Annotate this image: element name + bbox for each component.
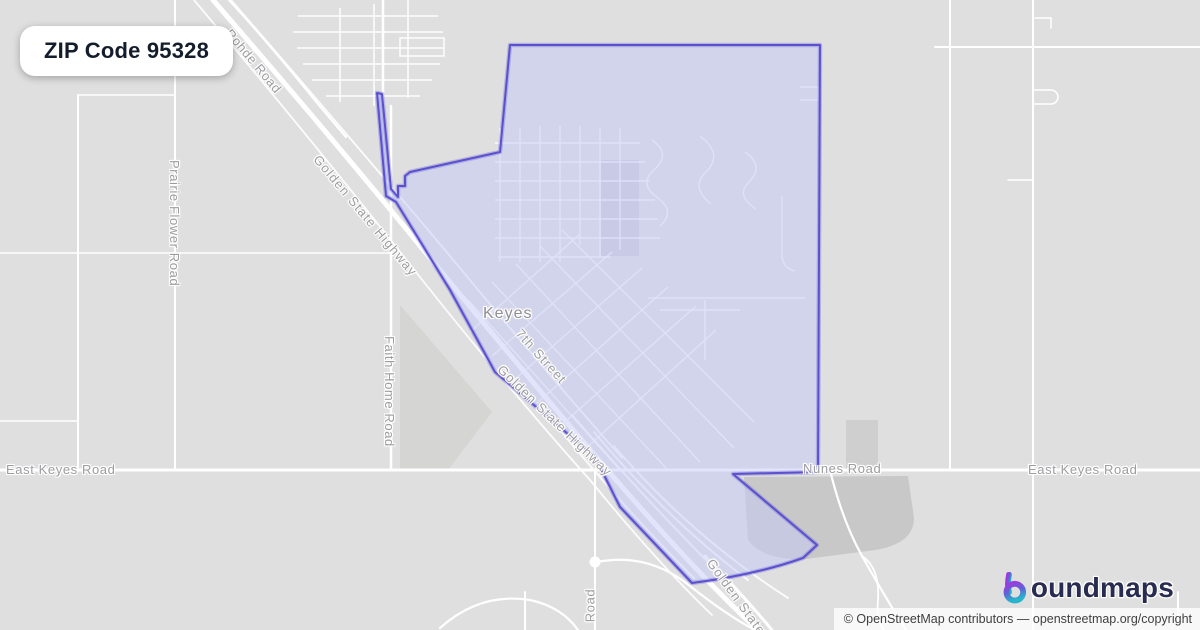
boundmaps-logo-text: oundmaps	[1031, 572, 1174, 604]
map-canvas[interactable]	[0, 0, 1200, 630]
zip-code-badge: ZIP Code 95328	[20, 26, 233, 76]
road-label-faith-home-road: Faith Home Road	[382, 336, 397, 447]
boundmaps-logo[interactable]: oundmaps	[999, 572, 1174, 604]
road-label-east-keyes-road-east: East Keyes Road	[1028, 462, 1137, 477]
zip-code-badge-label: ZIP Code 95328	[44, 38, 209, 63]
road-label-prairie-flower-road: Prairie Flower Road	[167, 160, 182, 286]
place-label-keyes: Keyes	[483, 305, 532, 323]
attribution-text: © OpenStreetMap contributors — openstree…	[844, 612, 1192, 626]
attribution-bar[interactable]: © OpenStreetMap contributors — openstree…	[834, 608, 1200, 630]
boundmaps-logo-icon	[999, 572, 1029, 604]
road-label-east-keyes-road-west: East Keyes Road	[6, 462, 115, 477]
map-screenshot: Rohde Road Golden State Highway Prairie …	[0, 0, 1200, 630]
road-label-nunes-road: Nunes Road	[803, 461, 881, 476]
road-label-partial-road: Road	[583, 576, 598, 630]
